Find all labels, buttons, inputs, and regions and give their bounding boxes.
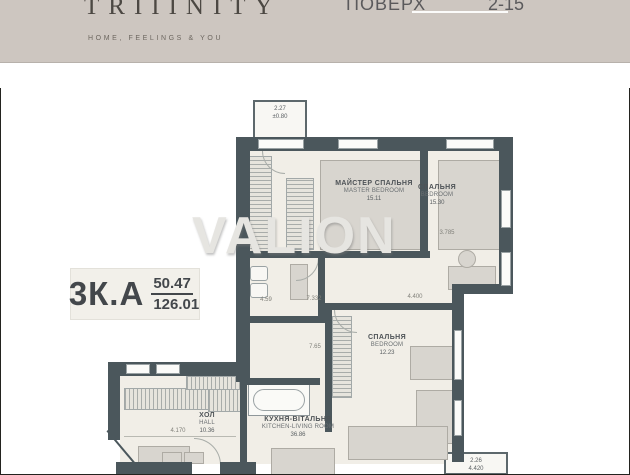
room-label-bedroom-3: СПАЛЬНЯ BEDROOM 12.23 bbox=[352, 334, 422, 357]
wall bbox=[325, 303, 460, 310]
balcony-top-area: 2.27 bbox=[255, 106, 305, 114]
balcony-top-level: ±0.80 bbox=[255, 114, 305, 122]
wall bbox=[318, 258, 325, 322]
room-area: 36.86 bbox=[252, 432, 344, 439]
window bbox=[501, 252, 511, 286]
room-label-kitchen-living: КУХНЯ-ВІТАЛЬНЯ KITCHEN-LIVING ROOM 36.86 bbox=[252, 416, 344, 439]
kitchen-island bbox=[271, 448, 335, 475]
unit-type: 3К.А bbox=[69, 275, 145, 313]
wall bbox=[325, 310, 332, 432]
room-area: 10.36 bbox=[183, 428, 231, 435]
unit-area-living: 50.47 bbox=[151, 275, 193, 295]
dimension: 4.400 bbox=[398, 294, 432, 300]
room-name: СПАЛЬНЯ bbox=[406, 184, 468, 192]
unit-badge: 3К.А 50.47 126.01 bbox=[70, 268, 200, 320]
toilet bbox=[250, 283, 268, 298]
room-name-en: HALL bbox=[183, 420, 231, 427]
unit-area-total: 126.01 bbox=[151, 295, 201, 313]
wall bbox=[236, 316, 325, 323]
wall bbox=[240, 376, 247, 464]
brand-logo: TRIIINITY bbox=[84, 0, 282, 21]
room-name-en: KITCHEN-LIVING ROOM bbox=[252, 424, 344, 431]
room-name-en: BEDROOM bbox=[406, 192, 468, 199]
window bbox=[126, 364, 150, 374]
window bbox=[454, 330, 462, 380]
dimension-line bbox=[124, 436, 236, 437]
dimension: 7.65 bbox=[300, 344, 330, 350]
watermark: VALION bbox=[192, 206, 442, 266]
unit-areas: 50.47 126.01 bbox=[151, 275, 201, 313]
dimension: 7.332 bbox=[294, 296, 334, 302]
room-name: СПАЛЬНЯ bbox=[352, 334, 422, 342]
bathtub bbox=[248, 384, 310, 416]
room-label-hall: ХОЛ HALL 10.36 bbox=[183, 412, 231, 435]
floor-value: 2-15 bbox=[488, 0, 524, 15]
dimension: 4.59 bbox=[254, 297, 278, 303]
room-name: ХОЛ bbox=[183, 412, 231, 420]
window bbox=[501, 190, 511, 228]
room-name: КУХНЯ-ВІТАЛЬНЯ bbox=[252, 416, 344, 424]
window bbox=[446, 139, 494, 149]
flyer-page: TRIIINITY HOME, FEELINGS & YOU ПОВЕРХ 2-… bbox=[0, 0, 630, 475]
wall bbox=[108, 362, 120, 440]
frame-edge-left bbox=[0, 88, 1, 475]
balcony-top: 2.27 ±0.80 bbox=[253, 100, 307, 140]
living-sofa bbox=[348, 426, 448, 460]
balcony-door-window bbox=[258, 139, 304, 149]
sink bbox=[250, 266, 268, 281]
closet-hatch bbox=[186, 376, 242, 390]
room-label-bedroom-2: СПАЛЬНЯ BEDROOM 15.30 bbox=[406, 184, 468, 207]
bathtub-basin bbox=[253, 389, 305, 411]
balcony-bottom-level: 4.420 bbox=[446, 466, 506, 474]
wall bbox=[240, 378, 320, 385]
brand-tagline: HOME, FEELINGS & YOU bbox=[88, 35, 223, 42]
window bbox=[454, 400, 462, 436]
window bbox=[338, 139, 378, 149]
bedroom2-chair bbox=[458, 250, 476, 268]
brand-header: TRIIINITY HOME, FEELINGS & YOU ПОВЕРХ 2-… bbox=[0, 0, 630, 63]
room-name-en: BEDROOM bbox=[352, 342, 422, 349]
window bbox=[156, 364, 180, 374]
room-area: 12.23 bbox=[352, 350, 422, 357]
